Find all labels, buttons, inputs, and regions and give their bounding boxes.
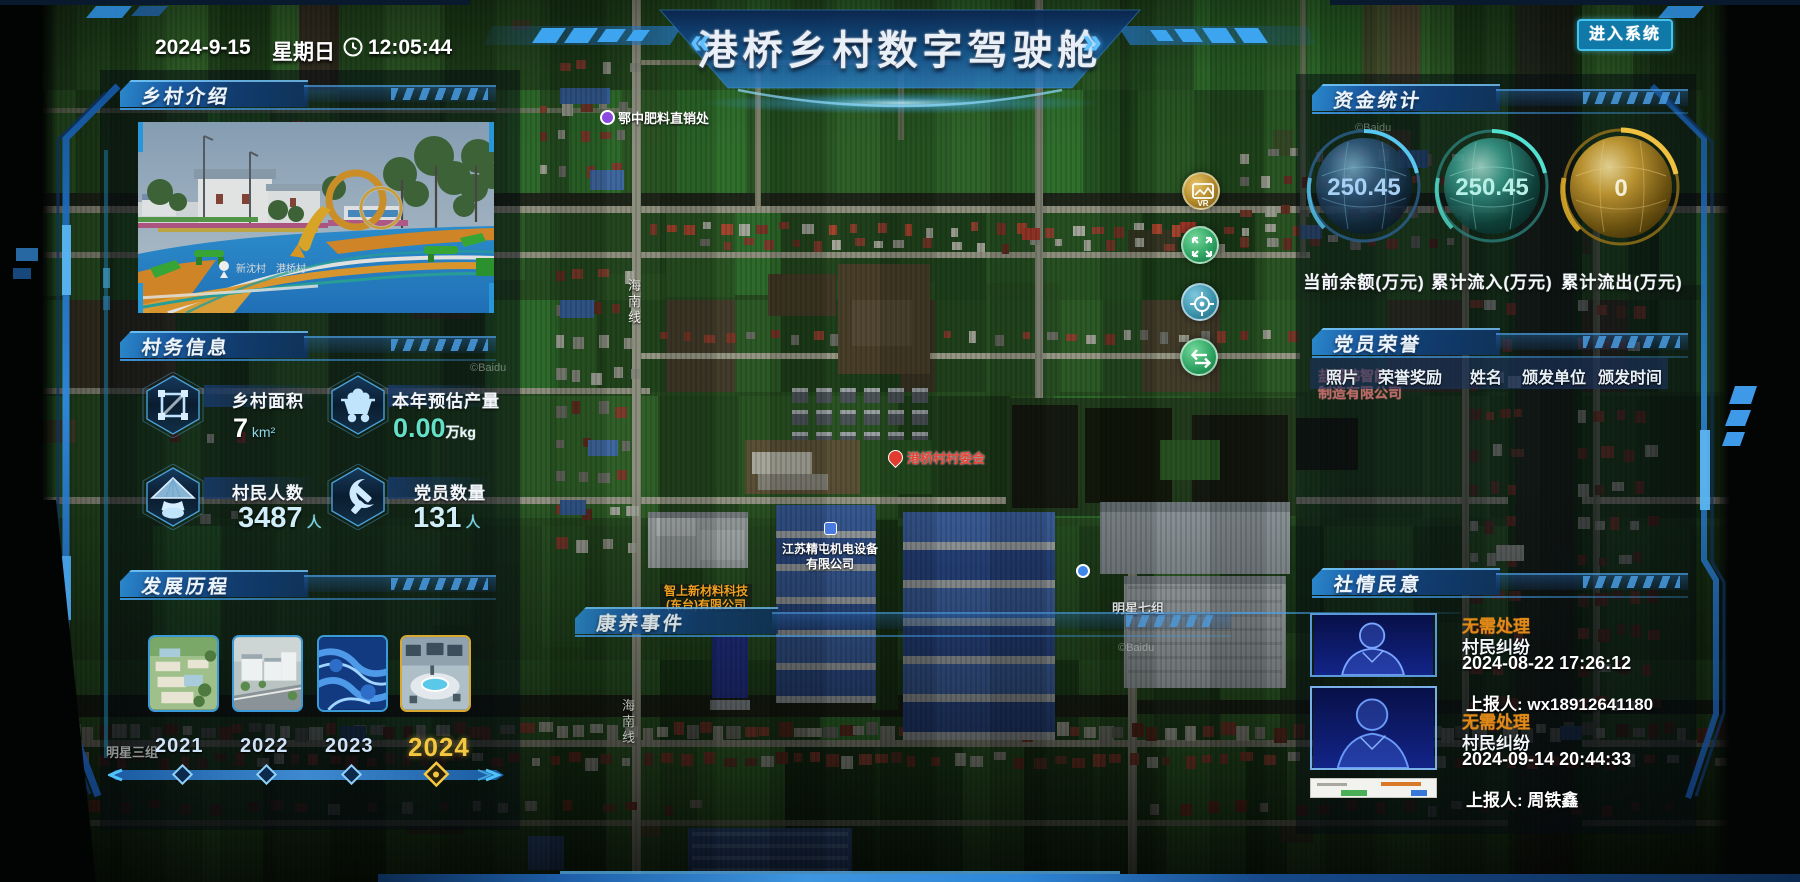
svg-text:250.45: 250.45 [1327,174,1400,201]
svg-text:0: 0 [1614,175,1627,202]
svg-text:250.45: 250.45 [1455,174,1528,201]
svg-text:VR: VR [1197,199,1208,208]
